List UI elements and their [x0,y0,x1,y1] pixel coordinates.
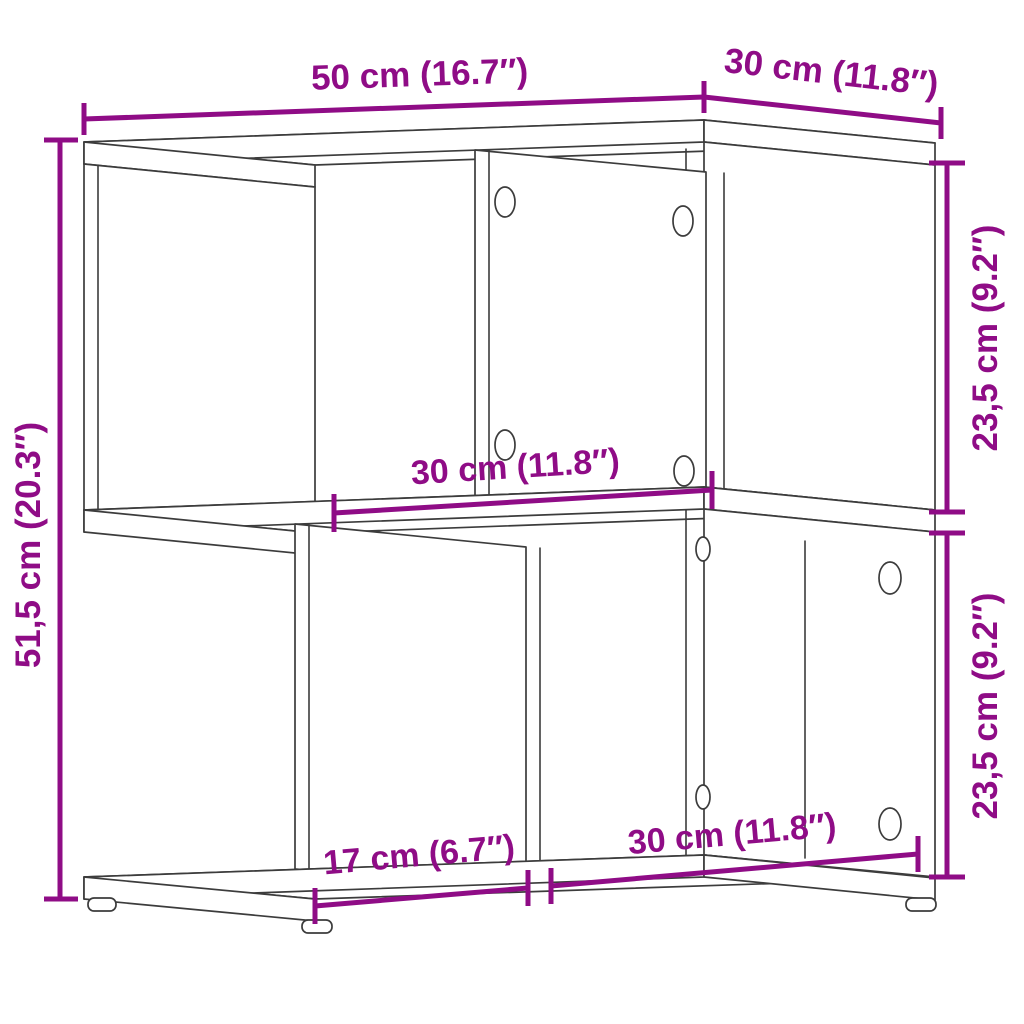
dimension-label-top-depth: 30 cm (11.8″) [722,41,940,104]
screw-hole [879,562,901,594]
upper-left-side-panel [84,164,315,533]
upper-left-panel-outer-face [84,164,315,533]
upper-right-panel-outer-face [704,142,935,510]
dimension-lower-inner-height: 23,5 cm (9.2″) [929,533,1005,877]
foot [906,898,936,911]
screw-hole [673,206,693,236]
dimension-upper-inner-height: 23,5 cm (9.2″) [929,163,1005,512]
dimension-line [84,97,704,119]
dimension-label-top-width: 50 cm (16.7″) [310,51,528,98]
screw-hole [879,808,901,840]
furniture-dimension-diagram: 50 cm (16.7″) 30 cm (11.8″) 51,5 cm (20.… [0,0,1024,1024]
dowel-hole [696,537,710,561]
dimension-label-upper-inner-height: 23,5 cm (9.2″) [966,225,1005,452]
foot [88,898,116,911]
dimension-top-width: 50 cm (16.7″) [84,51,704,135]
screw-hole [495,187,515,217]
screw-hole [674,456,694,486]
dimension-label-overall-height: 51,5 cm (20.3″) [9,422,48,668]
dimension-overall-height: 51,5 cm (20.3″) [9,140,78,899]
dimension-label-lower-inner-height: 23,5 cm (9.2″) [966,593,1005,820]
diagram-stage: 50 cm (16.7″) 30 cm (11.8″) 51,5 cm (20.… [0,0,1024,1024]
dowel-hole [696,785,710,809]
dimension-line [704,97,941,123]
